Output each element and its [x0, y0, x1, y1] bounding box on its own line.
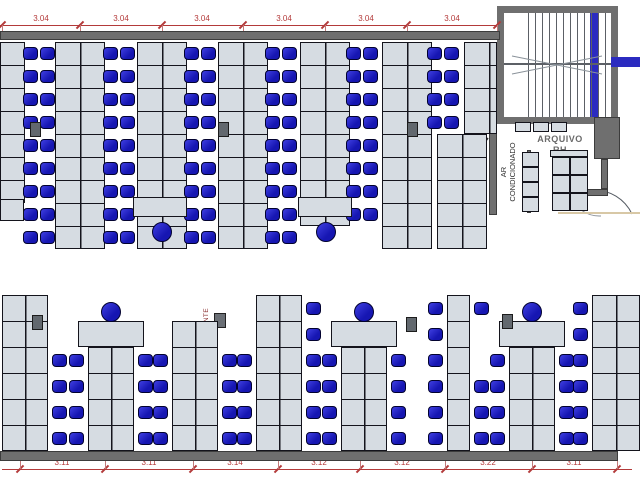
- wall: [0, 451, 618, 461]
- office-chair: [474, 432, 489, 445]
- office-chair: [306, 432, 321, 445]
- round-chair: [152, 222, 172, 242]
- office-chair: [52, 354, 67, 367]
- office-chair: [363, 116, 378, 129]
- office-chair: [237, 354, 252, 367]
- office-chair: [222, 354, 237, 367]
- wall: [594, 117, 620, 159]
- meeting-desk: [0, 199, 24, 221]
- manager-desk: [331, 321, 397, 347]
- printer: [406, 317, 417, 332]
- office-chair: [138, 380, 153, 393]
- office-chair: [184, 93, 199, 106]
- office-chair: [237, 406, 252, 419]
- office-chair: [153, 406, 168, 419]
- office-chair: [201, 93, 216, 106]
- office-chair: [23, 93, 38, 106]
- office-chair: [120, 93, 135, 106]
- wall: [0, 31, 500, 40]
- office-chair: [444, 93, 459, 106]
- office-chair: [265, 208, 280, 221]
- office-chair: [201, 231, 216, 244]
- office-chair: [222, 380, 237, 393]
- office-chair: [120, 70, 135, 83]
- office-chair: [282, 162, 297, 175]
- round-chair: [316, 222, 336, 242]
- round-chair: [354, 302, 374, 322]
- printer: [407, 122, 418, 137]
- office-chair: [103, 185, 118, 198]
- wall: [489, 131, 497, 215]
- cabinet: [522, 167, 539, 182]
- office-chair: [201, 70, 216, 83]
- room-label-ar-line1: AR: [499, 131, 508, 213]
- office-chair: [490, 406, 505, 419]
- office-chair: [201, 116, 216, 129]
- office-chair: [474, 406, 489, 419]
- desk-block: [464, 42, 497, 134]
- office-chair: [69, 354, 84, 367]
- office-chair: [265, 231, 280, 244]
- office-chair: [23, 185, 38, 198]
- office-chair: [201, 162, 216, 175]
- office-chair: [103, 139, 118, 152]
- office-chair: [282, 208, 297, 221]
- cabinet: [522, 197, 539, 212]
- office-chair: [559, 354, 574, 367]
- office-chair: [427, 70, 442, 83]
- office-chair: [391, 354, 406, 367]
- office-chair: [40, 231, 55, 244]
- office-chair: [23, 47, 38, 60]
- office-chair: [363, 185, 378, 198]
- dimension-label: 3.04: [439, 14, 465, 24]
- office-chair: [52, 406, 67, 419]
- desk-block: [437, 134, 487, 249]
- office-chair: [237, 432, 252, 445]
- office-chair: [103, 47, 118, 60]
- office-chair: [428, 432, 443, 445]
- office-chair: [184, 116, 199, 129]
- dimension-label: 3.04: [28, 14, 54, 24]
- desk-block: [592, 295, 640, 451]
- dimension-label: 3.04: [353, 14, 379, 24]
- office-chair: [69, 380, 84, 393]
- office-chair: [346, 47, 361, 60]
- cabinet: [570, 157, 588, 175]
- office-chair: [573, 354, 588, 367]
- office-chair: [153, 354, 168, 367]
- dimension-label: 3.04: [189, 14, 215, 24]
- printer: [218, 122, 229, 137]
- cabinet: [552, 157, 570, 175]
- office-chair: [306, 380, 321, 393]
- office-chair: [201, 139, 216, 152]
- office-chair: [237, 380, 252, 393]
- office-chair: [40, 116, 55, 129]
- office-chair: [52, 380, 67, 393]
- office-chair: [282, 47, 297, 60]
- desk-block: [218, 42, 268, 249]
- office-chair: [265, 70, 280, 83]
- office-chair: [474, 302, 489, 315]
- office-chair: [153, 432, 168, 445]
- office-chair: [444, 70, 459, 83]
- office-chair: [428, 302, 443, 315]
- office-chair: [427, 93, 442, 106]
- desk-block: [382, 42, 432, 249]
- office-chair: [573, 328, 588, 341]
- dimension-line: [0, 25, 497, 26]
- office-chair: [103, 93, 118, 106]
- office-chair: [120, 47, 135, 60]
- cabinet: [522, 182, 539, 197]
- office-chair: [282, 139, 297, 152]
- office-chair: [265, 185, 280, 198]
- cabinet: [570, 175, 588, 193]
- wall: [601, 159, 608, 189]
- office-chair: [282, 231, 297, 244]
- office-chair: [363, 139, 378, 152]
- office-chair: [265, 139, 280, 152]
- desk-block: [447, 295, 470, 451]
- office-chair: [40, 47, 55, 60]
- office-chair: [103, 231, 118, 244]
- desk-block: [137, 42, 187, 249]
- cabinet: [552, 175, 570, 193]
- office-chair: [428, 328, 443, 341]
- office-chair: [120, 116, 135, 129]
- office-chair: [40, 93, 55, 106]
- office-chair: [282, 185, 297, 198]
- dimension-label: 3.04: [108, 14, 134, 24]
- office-chair: [138, 354, 153, 367]
- cabinet: [550, 150, 588, 157]
- office-chair: [363, 70, 378, 83]
- office-chair: [23, 231, 38, 244]
- office-chair: [201, 47, 216, 60]
- stairwell: [497, 6, 618, 124]
- office-chair: [184, 47, 199, 60]
- office-chair: [23, 70, 38, 83]
- office-chair: [428, 354, 443, 367]
- office-chair: [490, 354, 505, 367]
- office-chair: [120, 162, 135, 175]
- dimension-line: [2, 469, 632, 470]
- office-chair: [573, 432, 588, 445]
- office-chair: [282, 93, 297, 106]
- office-chair: [346, 70, 361, 83]
- office-chair: [265, 93, 280, 106]
- office-floor-plan: ARQUIVO RH AR CONDICIONADO HIDRANTE 3.04…: [0, 0, 640, 480]
- office-chair: [573, 406, 588, 419]
- office-chair: [428, 406, 443, 419]
- office-chair: [427, 47, 442, 60]
- office-chair: [282, 70, 297, 83]
- office-chair: [346, 116, 361, 129]
- office-chair: [391, 380, 406, 393]
- office-chair: [265, 47, 280, 60]
- desk-block: [509, 347, 555, 451]
- printer: [32, 315, 43, 330]
- office-chair: [363, 93, 378, 106]
- office-chair: [23, 208, 38, 221]
- desk-block: [55, 42, 105, 249]
- office-chair: [40, 162, 55, 175]
- floor-edge-line: [558, 212, 640, 214]
- office-chair: [306, 302, 321, 315]
- desk-block: [256, 295, 302, 451]
- office-chair: [559, 380, 574, 393]
- office-chair: [23, 139, 38, 152]
- office-chair: [363, 47, 378, 60]
- printer: [502, 314, 513, 329]
- office-chair: [184, 70, 199, 83]
- office-chair: [120, 139, 135, 152]
- office-chair: [184, 139, 199, 152]
- meeting-desk: [298, 197, 352, 217]
- office-chair: [265, 116, 280, 129]
- office-chair: [346, 162, 361, 175]
- desk-block: [88, 347, 134, 451]
- stair-direction-cross: [510, 52, 606, 78]
- office-chair: [103, 116, 118, 129]
- office-chair: [201, 208, 216, 221]
- office-chair: [40, 208, 55, 221]
- office-chair: [69, 406, 84, 419]
- office-chair: [201, 185, 216, 198]
- round-chair: [522, 302, 542, 322]
- office-chair: [322, 380, 337, 393]
- office-chair: [573, 302, 588, 315]
- round-chair: [101, 302, 121, 322]
- office-chair: [265, 162, 280, 175]
- desk-block: [0, 42, 25, 203]
- stair-rail-extension: [611, 57, 640, 67]
- office-chair: [363, 208, 378, 221]
- office-chair: [222, 406, 237, 419]
- office-chair: [346, 139, 361, 152]
- office-chair: [153, 380, 168, 393]
- room-label-ar-line2: CONDICIONADO: [508, 131, 517, 213]
- office-chair: [103, 70, 118, 83]
- cabinet: [515, 122, 531, 132]
- room-label-arquivo-line1: ARQUIVO: [528, 134, 592, 145]
- room-label-ar-condicionado: AR CONDICIONADO: [499, 131, 517, 213]
- office-chair: [322, 432, 337, 445]
- office-chair: [103, 162, 118, 175]
- office-chair: [282, 116, 297, 129]
- cabinet: [522, 152, 539, 167]
- printer: [30, 122, 41, 137]
- cabinet: [551, 122, 567, 132]
- office-chair: [138, 406, 153, 419]
- office-chair: [322, 406, 337, 419]
- cabinet: [533, 122, 549, 132]
- office-chair: [103, 208, 118, 221]
- office-chair: [391, 432, 406, 445]
- office-chair: [222, 432, 237, 445]
- office-chair: [474, 380, 489, 393]
- office-chair: [559, 406, 574, 419]
- office-chair: [573, 380, 588, 393]
- office-chair: [322, 354, 337, 367]
- dimension-label: 3.04: [271, 14, 297, 24]
- office-chair: [490, 432, 505, 445]
- manager-desk: [78, 321, 144, 347]
- office-chair: [120, 231, 135, 244]
- office-chair: [363, 162, 378, 175]
- office-chair: [490, 380, 505, 393]
- office-chair: [306, 328, 321, 341]
- office-chair: [184, 231, 199, 244]
- office-chair: [391, 406, 406, 419]
- office-chair: [559, 432, 574, 445]
- office-chair: [40, 185, 55, 198]
- office-chair: [138, 432, 153, 445]
- office-chair: [52, 432, 67, 445]
- meeting-desk: [133, 197, 187, 217]
- desk-block: [172, 321, 218, 451]
- office-chair: [40, 70, 55, 83]
- cabinet: [570, 193, 588, 211]
- office-chair: [69, 432, 84, 445]
- office-chair: [306, 406, 321, 419]
- office-chair: [427, 116, 442, 129]
- office-chair: [23, 162, 38, 175]
- office-chair: [444, 116, 459, 129]
- office-chair: [184, 162, 199, 175]
- office-chair: [40, 139, 55, 152]
- office-chair: [306, 354, 321, 367]
- desk-block: [341, 347, 387, 451]
- office-chair: [346, 93, 361, 106]
- office-chair: [444, 47, 459, 60]
- cabinet: [552, 193, 570, 211]
- office-chair: [428, 380, 443, 393]
